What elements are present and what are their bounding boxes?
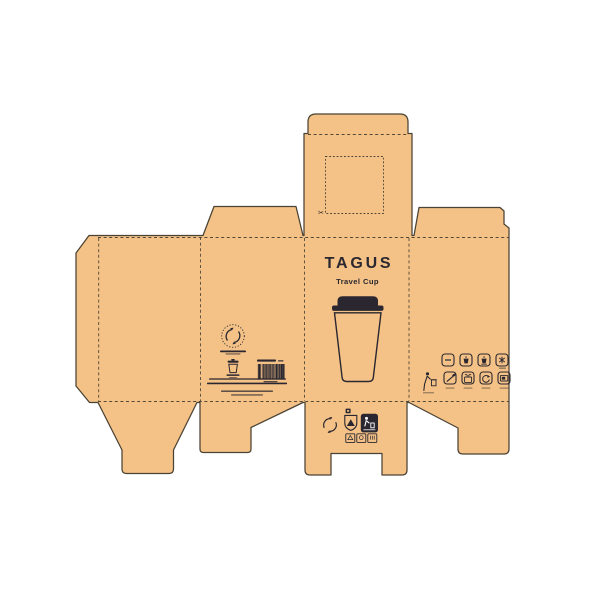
snowflake-caption [499, 368, 506, 369]
barcode-label-suffix [278, 360, 284, 362]
microcaption [423, 392, 434, 393]
cup-lid-cap [338, 296, 379, 305]
mini-code-tag-inner [347, 410, 349, 412]
barcode-caption [264, 381, 278, 382]
microtext-line [229, 377, 237, 378]
microtext-line [226, 353, 241, 354]
microtext-line [227, 374, 240, 376]
tidyman-head [426, 372, 429, 375]
dieline-cut-outline [76, 114, 509, 475]
pictogram-lip [228, 361, 239, 363]
pictogram-lid [231, 359, 235, 361]
cup-lid-lip [332, 306, 384, 311]
microcaption [446, 388, 455, 389]
microtext-line [221, 391, 273, 392]
scissors-icon: ✂ [318, 210, 324, 217]
hot-cup-steam [465, 357, 467, 358]
microcaption [464, 388, 473, 389]
brand-name: TAGUS [325, 255, 394, 272]
product-name: Travel Cup [336, 277, 379, 286]
tidyman-badge-icon [361, 414, 378, 433]
microcaption [500, 388, 509, 389]
microtext-line [220, 351, 246, 353]
cold-cup-steam [483, 357, 485, 358]
dieline-artwork: ✂ TAGUS Travel Cup [0, 0, 600, 600]
microtext-line [231, 394, 263, 395]
microtext-line [207, 383, 287, 385]
screen-glyph-fill [502, 377, 505, 380]
barcode-label [257, 360, 276, 362]
microtext-line [209, 378, 286, 380]
packaging-dieline-canvas: ✂ TAGUS Travel Cup [0, 0, 600, 600]
microcaption [482, 388, 491, 389]
badge-figure-head [365, 417, 368, 420]
